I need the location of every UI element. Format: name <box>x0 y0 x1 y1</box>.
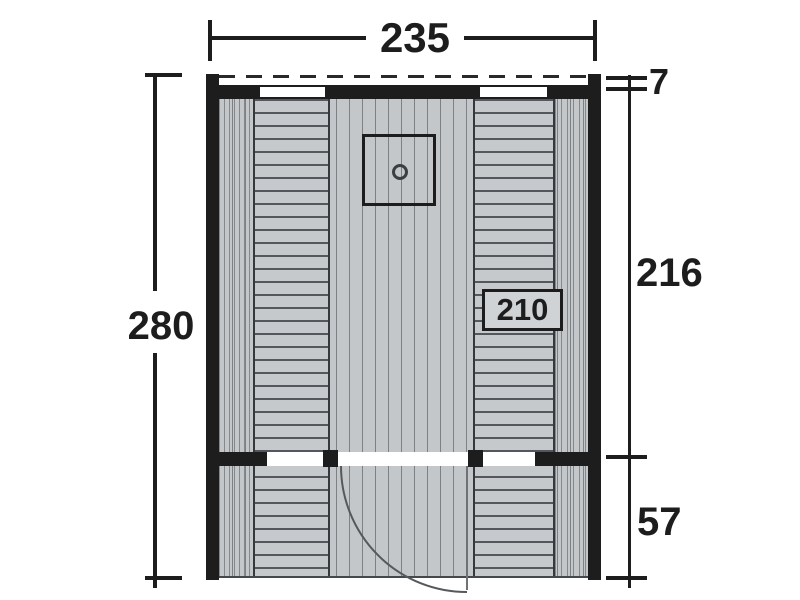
dim-porch-tick <box>606 576 647 580</box>
dim-width-tick <box>208 20 212 61</box>
left-wall <box>206 74 219 580</box>
roof-overhang-dashed-line <box>219 75 591 78</box>
dim-overhang-value: 7 <box>649 64 669 100</box>
back-window-opening <box>480 87 547 97</box>
bench-left <box>253 99 330 577</box>
front-deck-edge <box>219 576 588 578</box>
floor-plan: 210 235 280 7 216 57 <box>0 0 800 600</box>
door-opening <box>338 452 468 466</box>
dim-porch-depth-value: 57 <box>637 502 682 542</box>
bench-length-value: 210 <box>497 292 549 328</box>
dim-width-line <box>210 36 366 40</box>
window-opening <box>267 452 323 466</box>
dim-overhang-tick <box>606 87 647 91</box>
dim-width-line <box>464 36 597 40</box>
door-post <box>323 450 338 467</box>
door-post <box>468 450 483 467</box>
dim-width-tick <box>593 20 597 61</box>
dim-height-tick <box>145 73 182 77</box>
bench-length-label: 210 <box>482 289 563 331</box>
dim-height-tick <box>145 576 182 580</box>
bench-right <box>473 99 555 577</box>
right-wall <box>588 74 601 580</box>
dim-room-depth-value: 216 <box>636 253 703 293</box>
dim-height-line <box>153 353 157 588</box>
dim-height-line <box>153 77 157 291</box>
stove-flue-circle-icon <box>392 164 408 180</box>
dim-height-value: 280 <box>120 306 202 346</box>
left-wall-plank-strip <box>219 99 253 578</box>
dim-width-value: 235 <box>364 17 466 59</box>
back-window-opening <box>260 87 325 97</box>
right-wall-plank-strip <box>555 99 588 578</box>
dim-overhang-tick <box>606 76 647 80</box>
window-opening <box>483 452 535 466</box>
dim-room-tick <box>606 455 647 459</box>
dim-right-line <box>628 75 631 588</box>
